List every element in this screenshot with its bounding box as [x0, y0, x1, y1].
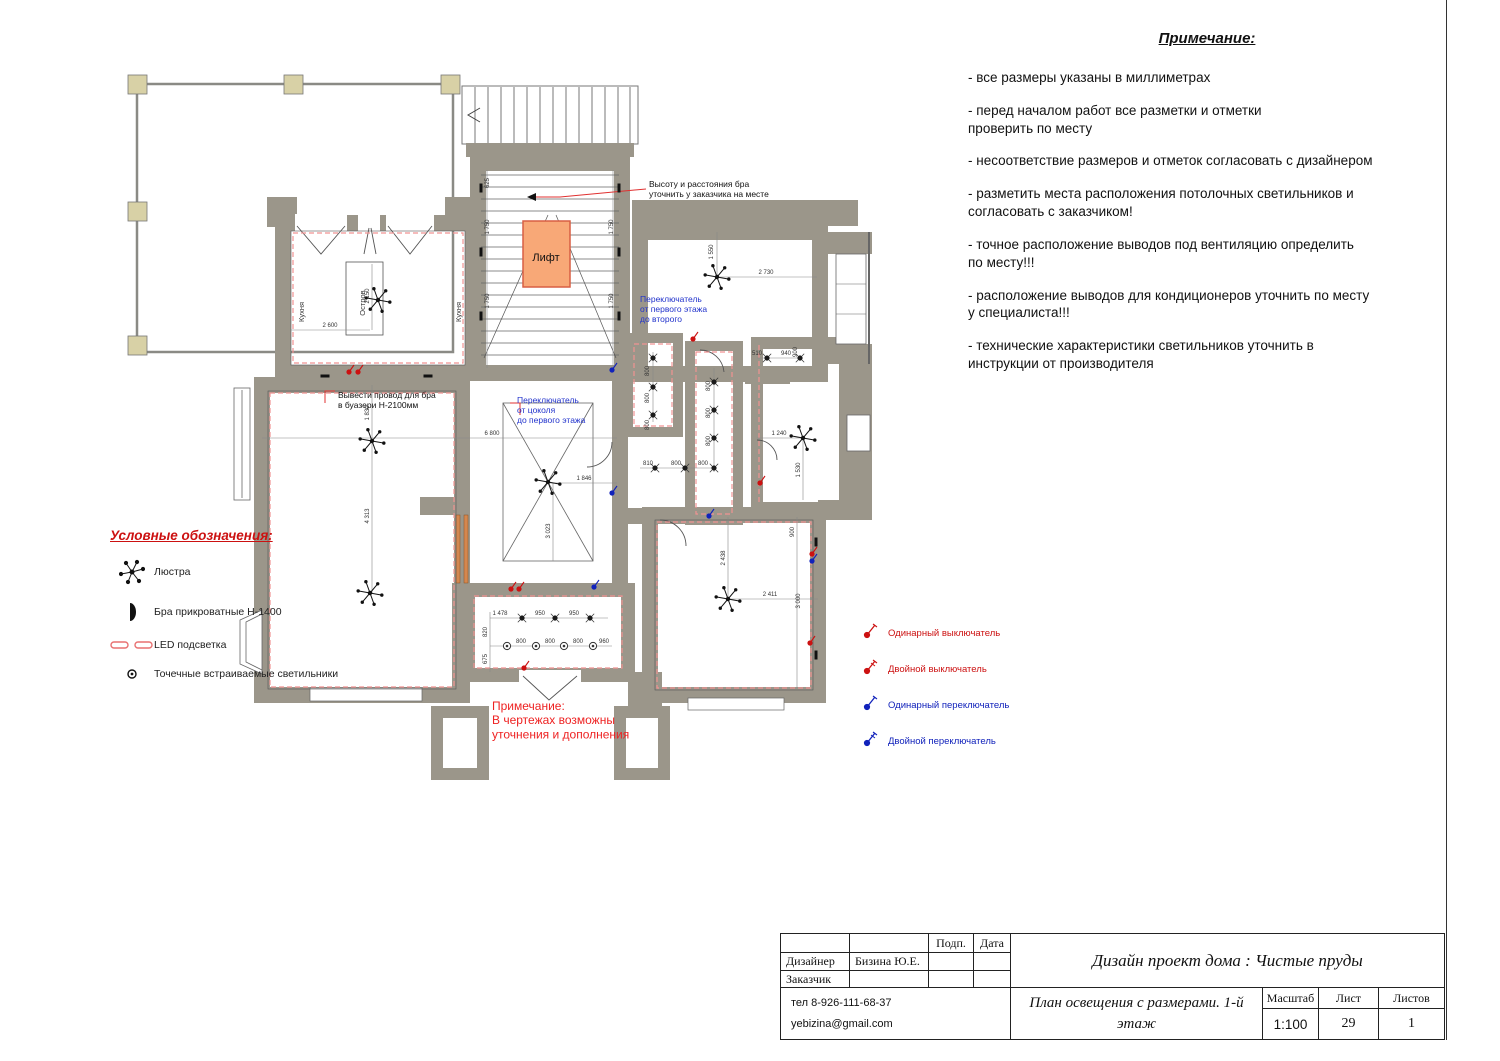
tb-designer-sign: [928, 952, 974, 971]
dimension-label: 1 550: [709, 244, 715, 260]
switch-icon: [862, 694, 888, 717]
dimension-label: 1 240: [771, 431, 787, 437]
note-item: - расположение выводов для кондиционеров…: [968, 287, 1446, 323]
title-block: Подп. Дата Дизайнер Бизина Ю.Е. Заказчик…: [780, 933, 1445, 1040]
switch-legend-label: Двойной переключатель: [888, 736, 996, 747]
dimension-label: 2 730: [758, 270, 774, 276]
legend-panel: Условные обозначения: Люстра Бра прикров…: [110, 528, 370, 697]
sconce-symbol: [480, 184, 483, 193]
sconce-symbol: [618, 184, 621, 193]
dimension-label: 3 023: [546, 523, 552, 539]
note-item: - разметить места расположения потолочны…: [968, 185, 1446, 221]
legend-item-led: LED подсветка: [110, 639, 370, 651]
tb-phone: тел 8-926-111-68-37: [791, 997, 891, 1009]
notes-list: - все размеры указаны в миллиметрах- пер…: [968, 69, 1446, 373]
tb-scale-value: 1:100: [1262, 1008, 1319, 1040]
tb-contacts: тел 8-926-111-68-37 yebizina@gmail.com: [780, 987, 1011, 1040]
tb-sheets-value: 1: [1378, 1008, 1445, 1040]
dimension-label: 800: [671, 461, 682, 467]
dimension-label: 1 750: [485, 219, 491, 235]
tb-designer-label: Дизайнер: [780, 952, 850, 971]
recessed-spot-symbol: [503, 642, 510, 649]
dimension-label: 800: [698, 461, 709, 467]
tb-designer-name: Бизина Ю.Е.: [849, 952, 929, 971]
note-item: - технические характеристики светильнико…: [968, 337, 1446, 373]
dimension-label: 800: [706, 407, 712, 418]
dimension-label: 900: [793, 346, 799, 357]
dimension-label: 1 750: [609, 219, 615, 235]
notes-panel: Примечание: - все размеры указаны в милл…: [968, 30, 1446, 388]
legend-item-label: Точечные встраиваемые светильники: [154, 668, 338, 680]
switch-symbol: [690, 332, 698, 342]
dimension-label: 2 411: [763, 592, 778, 598]
dimension-label: 820: [483, 626, 489, 637]
switch-legend-label: Одинарный переключатель: [888, 700, 1009, 711]
chandelier-icon: [110, 559, 154, 585]
dimension-label: 3 000: [796, 593, 802, 609]
floor-plan: 6 8001 8462 7301 5502 6002 1501 8304 313…: [0, 0, 960, 820]
dimension-label: 810: [643, 461, 654, 467]
tb-scale-label: Масштаб: [1262, 987, 1319, 1009]
tb-client-date: [973, 970, 1011, 988]
spotlight-icon: [110, 668, 154, 680]
sconce-symbol: [424, 375, 433, 378]
note-item: - несоответствие размеров и отметок согл…: [968, 152, 1446, 170]
dimension-label: 1 846: [576, 476, 592, 482]
switch-icon: [862, 622, 888, 645]
dimension-label: 2 438: [721, 550, 727, 566]
dimension-label: 950: [535, 611, 546, 617]
legend-item-sconce: Бра прикроватные Н-1400: [110, 602, 370, 622]
dimension-label: 675: [483, 653, 489, 664]
sconce-symbol: [480, 248, 483, 257]
tb-podp-header: Подп.: [928, 933, 974, 953]
dimension-label: 800: [545, 639, 556, 645]
note-item: - перед началом работ все разметки и отм…: [968, 102, 1446, 138]
dimension-label: 950: [569, 611, 580, 617]
plan-label: Вывести провод для брав буазери Н-2100мм: [338, 390, 436, 410]
tb-sheet-label: Лист: [1318, 987, 1379, 1009]
dimension-label: 900: [790, 526, 796, 537]
note-item: - все размеры указаны в миллиметрах: [968, 69, 1446, 87]
recessed-spot-symbol: [560, 642, 567, 649]
sconce-symbol: [618, 312, 621, 321]
legend-item-spot: Точечные встраиваемые светильники: [110, 668, 370, 680]
dimension-label: 625: [485, 177, 491, 188]
legend-title: Условные обозначения:: [110, 528, 370, 543]
tb-sheet-title: План освещения с размерами. 1-й этаж: [1010, 987, 1263, 1040]
sconce-symbol: [618, 248, 621, 257]
legend-item-chandelier: Люстра: [110, 559, 370, 585]
dimension-label: 800: [573, 639, 584, 645]
plan-label: Переключательот цоколядо первого этажа: [517, 395, 586, 425]
tb-empty-1: [780, 933, 850, 953]
sconce-symbol: [815, 538, 818, 547]
dimension-label: 960: [599, 639, 610, 645]
tb-project-title: Дизайн проект дома : Чистые пруды: [1010, 933, 1445, 988]
legend-item-label: Бра прикроватные Н-1400: [154, 606, 282, 618]
plan-label: Кухня: [454, 302, 463, 322]
switch-icon: [862, 658, 888, 681]
dimension-label: 1 750: [485, 293, 491, 309]
sconce-symbol: [480, 312, 483, 321]
page-border: [1446, 0, 1447, 1040]
plan-label: Высоту и расстояния брауточнить у заказч…: [649, 179, 769, 199]
dimension-label: 800: [706, 380, 712, 391]
dimension-label: 1 750: [609, 293, 615, 309]
led-strip-icon: [110, 640, 154, 650]
switch-legend-item: Одинарный выключатель: [862, 622, 1009, 645]
dimension-label: 1 530: [796, 462, 802, 478]
sconce-icon: [110, 602, 154, 622]
legend-item-label: LED подсветка: [154, 639, 226, 651]
dimension-label: 940: [781, 351, 792, 357]
dimension-label: 800: [645, 419, 651, 430]
tb-client-label: Заказчик: [780, 970, 850, 988]
partition-stub: [745, 379, 790, 384]
tb-client-sign: [928, 970, 974, 988]
dimension-label: 800: [645, 392, 651, 403]
recessed-spot-symbol: [532, 642, 539, 649]
switch-legend-label: Двойной выключатель: [888, 664, 987, 675]
plan-label: Лифт: [532, 252, 559, 264]
tb-email: yebizina@gmail.com: [791, 1018, 893, 1030]
note-item: - точное расположение выводов под вентил…: [968, 236, 1446, 272]
dimension-label: 1 478: [492, 611, 508, 617]
dimension-label: 6 800: [484, 431, 500, 437]
dimension-label: 800: [706, 435, 712, 446]
tb-sheet-value: 29: [1318, 1008, 1379, 1040]
notes-title: Примечание:: [968, 30, 1446, 47]
tb-data-header: Дата: [973, 933, 1011, 953]
dimension-label: 2 600: [322, 323, 338, 329]
plan-label: Остров: [358, 290, 367, 315]
tb-client-name: [849, 970, 929, 988]
dimension-label: 4 313: [365, 508, 371, 524]
dimension-label: 800: [645, 365, 651, 376]
sconce-symbol: [815, 651, 818, 660]
switch-legend-item: Двойной переключатель: [862, 730, 1009, 753]
legend-item-label: Люстра: [154, 566, 191, 578]
sconce-symbol: [321, 375, 330, 378]
tb-empty-2: [849, 933, 929, 953]
switch-legend: Одинарный выключатель Двойной выключател…: [862, 622, 1009, 766]
tb-sheets-label: Листов: [1378, 987, 1445, 1009]
recessed-spot-symbol: [589, 642, 596, 649]
plan-label: Переключательот первого этажадо второго: [640, 294, 707, 324]
plan-label: Примечание:В чертежах возможныуточнения …: [492, 699, 629, 741]
exterior-stair: [462, 86, 638, 144]
tb-designer-date: [973, 952, 1011, 971]
switch-legend-label: Одинарный выключатель: [888, 628, 1000, 639]
chandelier-symbol: [534, 469, 561, 495]
switch-legend-item: Двойной выключатель: [862, 658, 1009, 681]
plan-label: Кухня: [297, 302, 306, 322]
dimension-label: 800: [516, 639, 527, 645]
switch-legend-item: Одинарный переключатель: [862, 694, 1009, 717]
dimension-label: 510: [752, 351, 763, 357]
switch-icon: [862, 730, 888, 753]
